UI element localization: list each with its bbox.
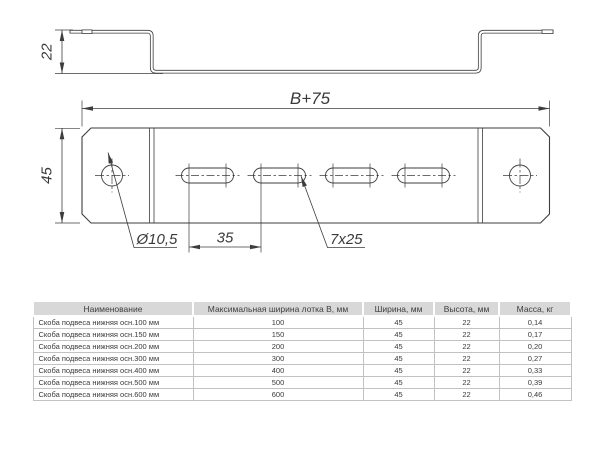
width-dim-extension-lines [55,128,80,223]
column-header-width: Ширина, мм [363,301,434,316]
product-name-cell: Скоба подвеса нижняя осн.100 мм [33,316,193,329]
table-row: Скоба подвеса нижняя осн.400 мм40045220,… [33,365,571,377]
value-cell: 45 [363,353,434,365]
column-header-height: Высота, мм [434,301,499,316]
table-row: Скоба подвеса нижняя осн.500 мм50045220,… [33,377,571,389]
value-cell: 400 [193,365,363,377]
table-row: Скоба подвеса нижняя осн.600 мм60045220,… [33,389,571,401]
table-row: Скоба подвеса нижняя осн.150 мм15045220,… [33,329,571,341]
technical-drawing: 22 [0,0,600,296]
spec-table-body: Скоба подвеса нижняя осн.100 мм10045220,… [33,316,571,401]
pitch-dim-label: 35 [217,230,234,247]
value-cell: 150 [193,329,363,341]
column-header-mass: Масса, кг [499,301,571,316]
value-cell: 22 [434,329,499,341]
value-cell: 0,14 [499,316,571,329]
value-cell: 45 [363,341,434,353]
value-cell: 500 [193,377,363,389]
value-cell: 0,46 [499,389,571,401]
hole-diameter-label: Ø10,5 [136,231,179,248]
value-cell: 45 [363,377,434,389]
value-cell: 0,27 [499,353,571,365]
value-cell: 0,39 [499,377,571,389]
spec-table: Наименование Максимальная ширина лотка B… [32,300,570,401]
profile-right-notch [542,30,553,34]
product-name-cell: Скоба подвеса нижняя осн.300 мм [33,353,193,365]
product-name-cell: Скоба подвеса нижняя осн.150 мм [33,329,193,341]
height-dim-label: 22 [39,43,56,61]
side-view: 22 [39,30,554,74]
value-cell: 45 [363,365,434,377]
spec-table-grid: Наименование Максимальная ширина лотка B… [32,300,572,401]
value-cell: 0,17 [499,329,571,341]
value-cell: 600 [193,389,363,401]
value-cell: 45 [363,389,434,401]
value-cell: 0,20 [499,341,571,353]
table-row: Скоба подвеса нижняя осн.200 мм20045220,… [33,341,571,353]
table-row: Скоба подвеса нижняя осн.100 мм10045220,… [33,316,571,329]
slot-size-label: 7x25 [330,231,363,248]
spec-table-header-row: Наименование Максимальная ширина лотка B… [33,301,571,316]
sheet-profile-inner [70,32,553,72]
product-name-cell: Скоба подвеса нижняя осн.600 мм [33,389,193,401]
value-cell: 200 [193,341,363,353]
column-header-max-width: Максимальная ширина лотка B, мм [193,301,363,316]
product-name-cell: Скоба подвеса нижняя осн.400 мм [33,365,193,377]
value-cell: 22 [434,353,499,365]
value-cell: 0,33 [499,365,571,377]
plate-outline [82,128,550,223]
value-cell: 22 [434,316,499,329]
value-cell: 22 [434,377,499,389]
profile-left-notch [82,30,92,34]
value-cell: 45 [363,329,434,341]
value-cell: 22 [434,341,499,353]
length-dim-label: B+75 [290,89,331,108]
product-name-cell: Скоба подвеса нижняя осн.200 мм [33,341,193,353]
value-cell: 22 [434,389,499,401]
column-header-name: Наименование [33,301,193,316]
product-name-cell: Скоба подвеса нижняя осн.500 мм [33,377,193,389]
top-view: B+75 45 35 Ø10,5 7x25 [39,89,550,253]
value-cell: 100 [193,316,363,329]
table-row: Скоба подвеса нижняя осн.300 мм30045220,… [33,353,571,365]
value-cell: 300 [193,353,363,365]
width-dim-label: 45 [39,167,56,184]
value-cell: 22 [434,365,499,377]
height-dim-extension-lines [55,30,163,74]
value-cell: 45 [363,316,434,329]
